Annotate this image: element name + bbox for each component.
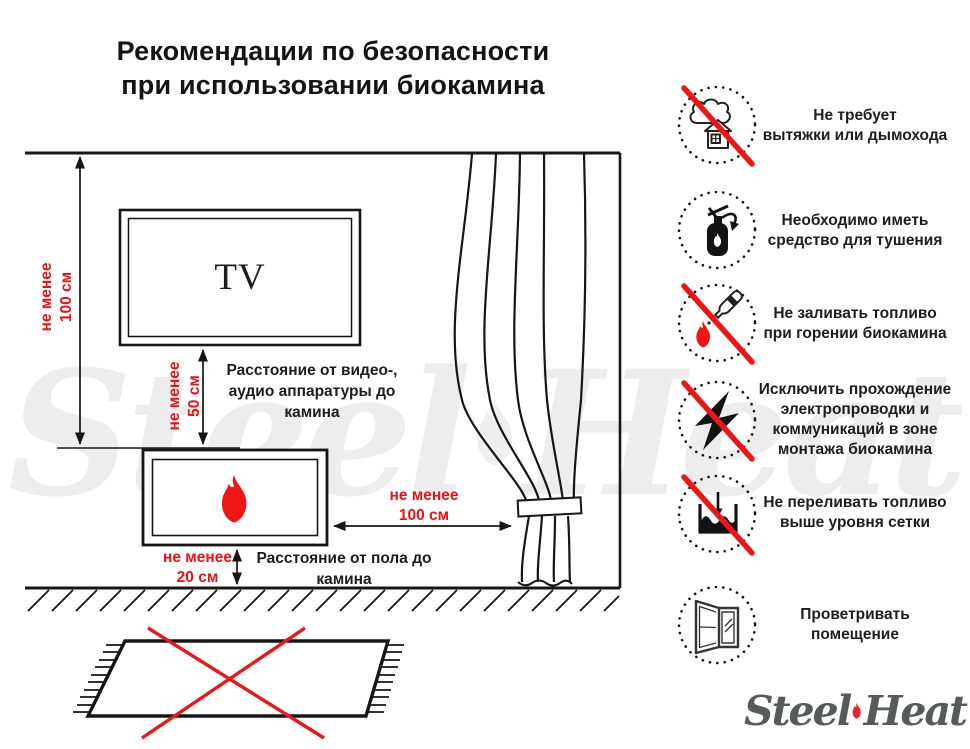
rule-text-4: Исключить прохождение электропроводки и … [747,380,963,460]
carpet-outline [88,641,388,716]
curtain-tieback [518,497,582,516]
steelheat-logo: Steel Heat [744,680,966,742]
rule-text-2: Необходимо иметь средство для тушения [747,211,963,251]
logo-heat: Heat [864,687,966,735]
carpet [73,628,404,738]
rule-text-3: Не заливать топливо при горении биокамин… [747,304,963,344]
floor-hatching [28,590,619,611]
fuel-bottle [713,289,743,319]
tv-distance-label: не менее 50 см [165,331,205,461]
rule-text-1: Не требует вытяжки или дымохода [747,106,963,146]
curtain-distance-label: не менее 100 см [369,486,479,526]
floor-distance-label: не менее 20 см [150,548,245,588]
rule-text-5: Не переливать топливо выше уровня сетки [747,493,963,533]
open-window [696,601,738,653]
logo-steel: Steel [744,687,850,735]
extinguisher [707,206,739,256]
tv-label: TV [120,256,360,299]
rule-text-6: Проветривать помещение [747,605,963,645]
logo-flame-icon [850,684,863,738]
ceiling-distance-label: не менее 100 см [37,232,77,362]
tv-distance-note: Расстояние от видео-, аудио аппаратуры д… [212,360,412,423]
burning-flame [696,321,710,347]
floor-distance-note: Расстояние от пола до камина [244,548,444,590]
infographic-page: Steel Heat Рекомендации по безопасности … [0,0,970,749]
